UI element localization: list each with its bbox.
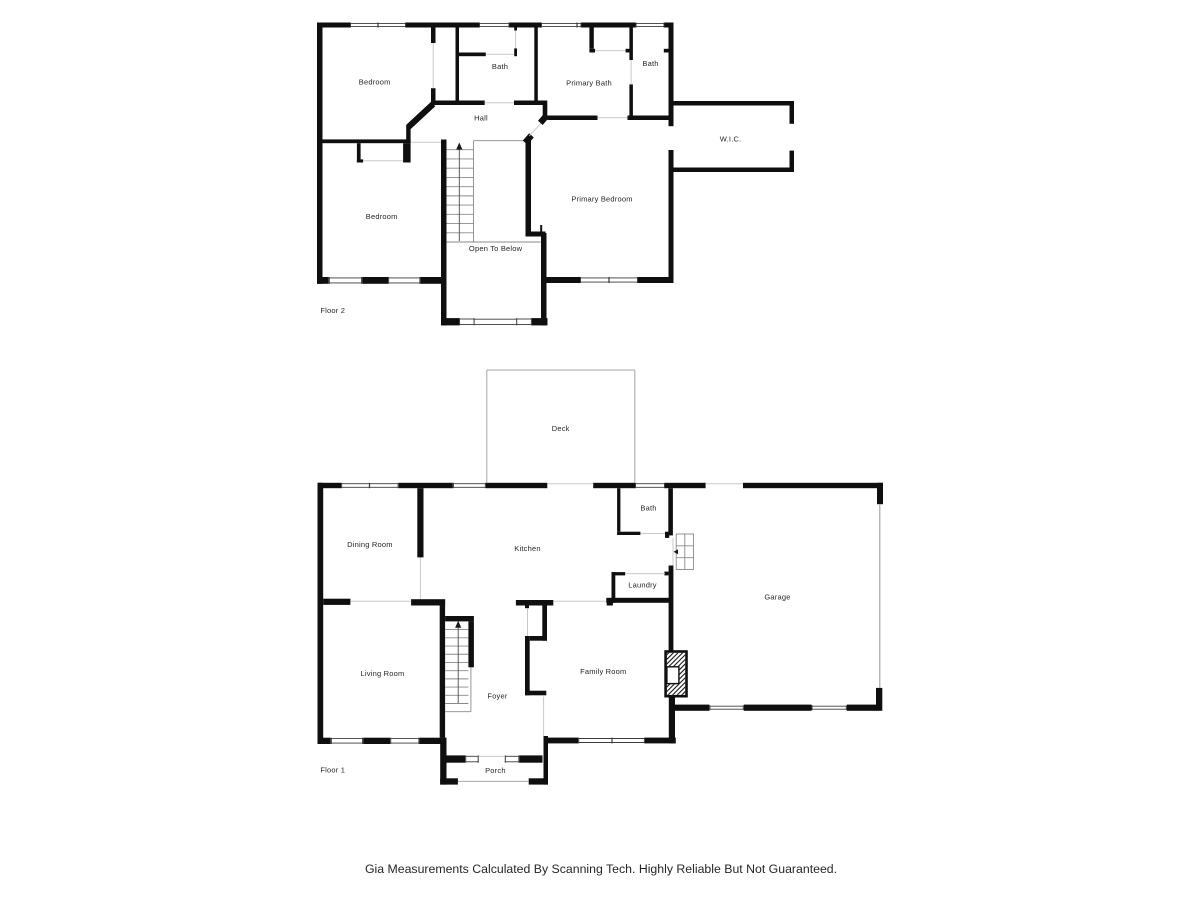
svg-text:Bedroom: Bedroom (359, 78, 391, 87)
svg-text:Garage: Garage (764, 593, 790, 602)
svg-text:Family Room: Family Room (580, 667, 626, 676)
svg-text:Primary Bedroom: Primary Bedroom (571, 194, 632, 203)
svg-text:W.I.C.: W.I.C. (720, 134, 742, 143)
svg-text:Deck: Deck (552, 424, 570, 433)
svg-text:Living Room: Living Room (361, 669, 405, 678)
svg-text:Bedroom: Bedroom (366, 212, 398, 221)
svg-text:Primary Bath: Primary Bath (566, 79, 612, 88)
svg-text:Foyer: Foyer (487, 691, 507, 700)
svg-text:Floor 2: Floor 2 (320, 306, 345, 315)
svg-text:Porch: Porch (485, 766, 506, 775)
svg-text:Open To Below: Open To Below (469, 244, 523, 253)
svg-text:Kitchen: Kitchen (514, 544, 540, 553)
svg-text:Hall: Hall (474, 114, 488, 123)
svg-text:Floor 1: Floor 1 (320, 765, 345, 774)
svg-text:Gia Measurements Calculated By: Gia Measurements Calculated By Scanning … (365, 862, 837, 876)
svg-text:Laundry: Laundry (628, 580, 657, 589)
svg-text:Bath: Bath (642, 59, 658, 68)
svg-text:Bath: Bath (640, 504, 656, 513)
svg-text:Bath: Bath (492, 62, 508, 71)
svg-text:Dining Room: Dining Room (347, 540, 393, 549)
